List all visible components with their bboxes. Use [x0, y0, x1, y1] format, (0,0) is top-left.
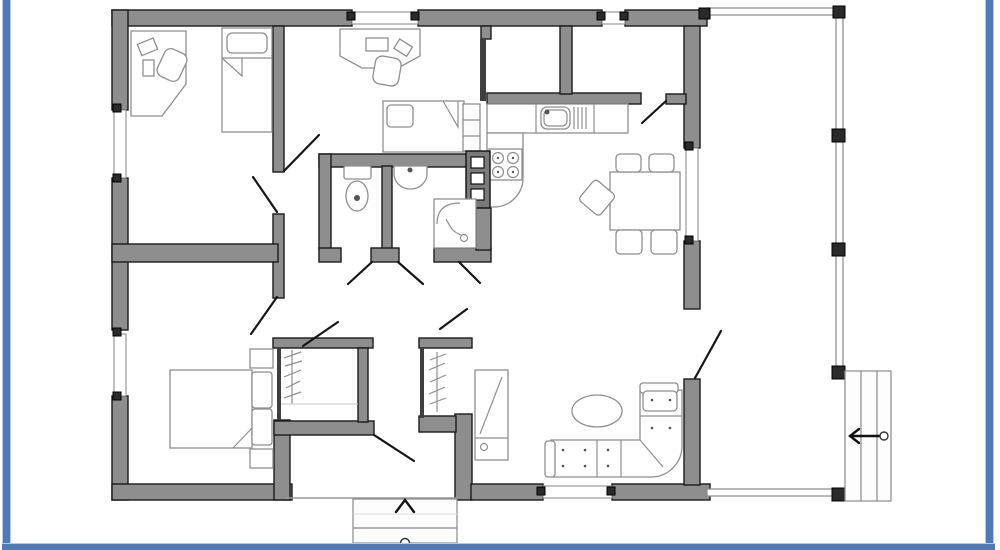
living-furniture: [475, 370, 682, 477]
room-storage: [487, 26, 560, 93]
bedroom-top-furniture: [340, 29, 480, 152]
floor-plan-page: [0, 0, 1000, 550]
master-bedroom-furniture: [170, 349, 273, 468]
room-top-right: [572, 26, 684, 93]
page-frame-left: [2, 0, 11, 550]
bathroom-fixtures: [344, 166, 476, 248]
closet-left: [281, 350, 358, 404]
page-frame-right: [985, 0, 994, 550]
dining-furniture: [578, 154, 680, 254]
closet-right: [429, 352, 446, 412]
room-terrace: [705, 10, 838, 490]
page-frame-bottom: [2, 543, 995, 550]
terrace-railing: [699, 6, 845, 501]
office-furniture: [131, 28, 272, 132]
terrace-steps: [845, 371, 891, 501]
entry-steps: [286, 498, 457, 548]
floor-plan-drawing: [0, 0, 1000, 550]
